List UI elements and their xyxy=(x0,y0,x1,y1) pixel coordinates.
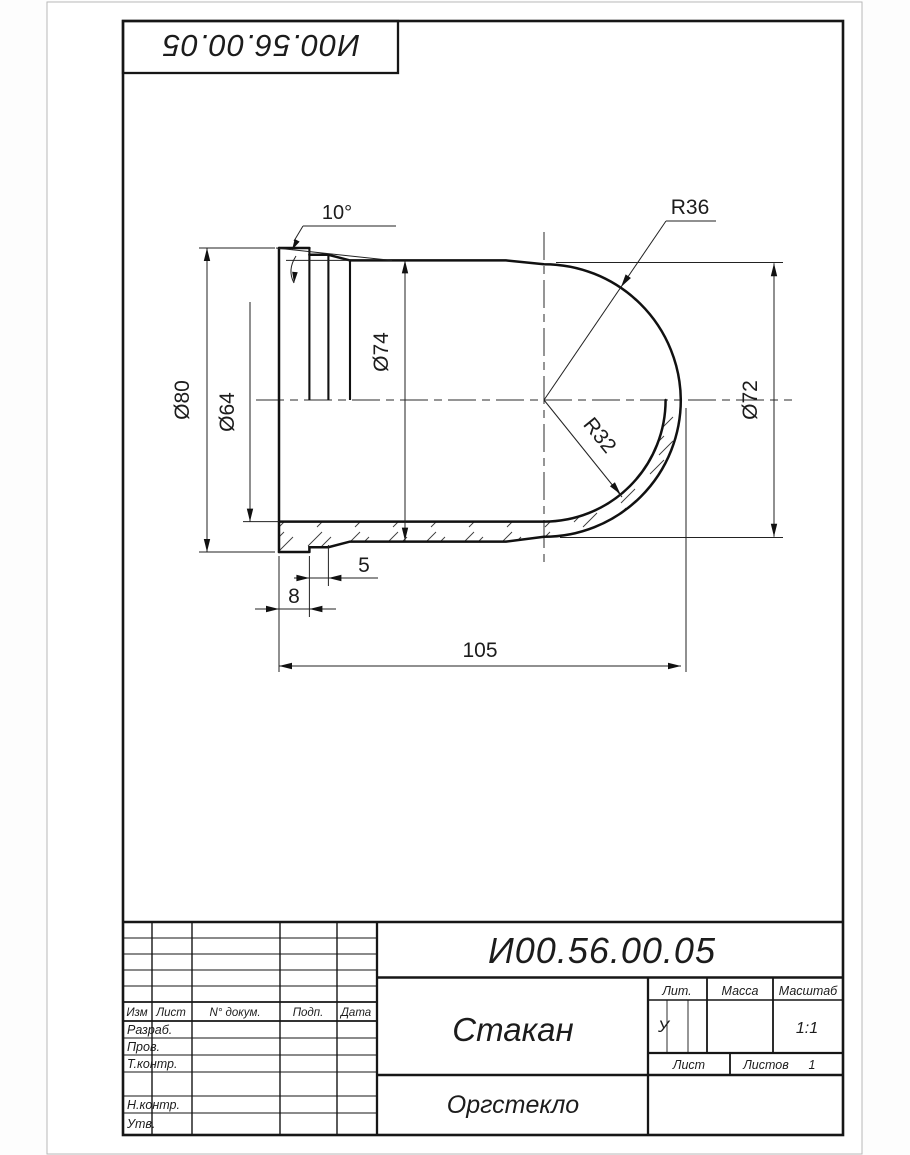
header-lit: Лит. xyxy=(661,984,691,998)
row-tkontr: Т.контр. xyxy=(127,1057,177,1071)
dim-label-d64: Ø64 xyxy=(216,392,239,432)
paper-edge xyxy=(47,2,862,1154)
value-sheets-count: 1 xyxy=(809,1058,816,1072)
value-scale: 1:1 xyxy=(796,1020,818,1037)
dim-label-d74: Ø74 xyxy=(370,332,393,372)
titleblock-material: Оргстекло xyxy=(447,1091,580,1119)
row-utv: Утв. xyxy=(126,1117,155,1131)
header-sign: Подп. xyxy=(293,1007,324,1019)
row-nkontr: Н.контр. xyxy=(127,1098,180,1112)
drawing-sheet: И00.56.00.05 xyxy=(0,0,910,1155)
header-sheets: Листов xyxy=(742,1058,789,1072)
row-razrab: Разраб. xyxy=(127,1023,172,1037)
dim-label-105: 105 xyxy=(462,639,497,662)
titleblock-part-name: Стакан xyxy=(452,1011,573,1048)
stamp-number: И00.56.00.05 xyxy=(162,28,360,63)
header-list: Лист xyxy=(155,1007,186,1019)
dim-label-r36: R36 xyxy=(671,196,710,219)
dim-label-angle: 10° xyxy=(322,202,352,224)
header-izm: Изм xyxy=(126,1007,147,1019)
header-mass: Масса xyxy=(722,984,759,998)
header-sheet: Лист xyxy=(672,1058,705,1072)
dim-label-8: 8 xyxy=(288,585,300,608)
row-prov: Пров. xyxy=(127,1040,160,1054)
dim-label-5: 5 xyxy=(358,554,370,577)
header-scale: Масштаб xyxy=(779,984,838,998)
header-doc: N° докум. xyxy=(209,1007,260,1019)
dim-label-d80: Ø80 xyxy=(171,380,194,420)
header-date: Дата xyxy=(339,1007,371,1019)
drawing-canvas: И00.56.00.05 xyxy=(0,0,910,1155)
titleblock-doc-number: И00.56.00.05 xyxy=(488,930,716,971)
dim-label-d72: Ø72 xyxy=(739,380,762,420)
